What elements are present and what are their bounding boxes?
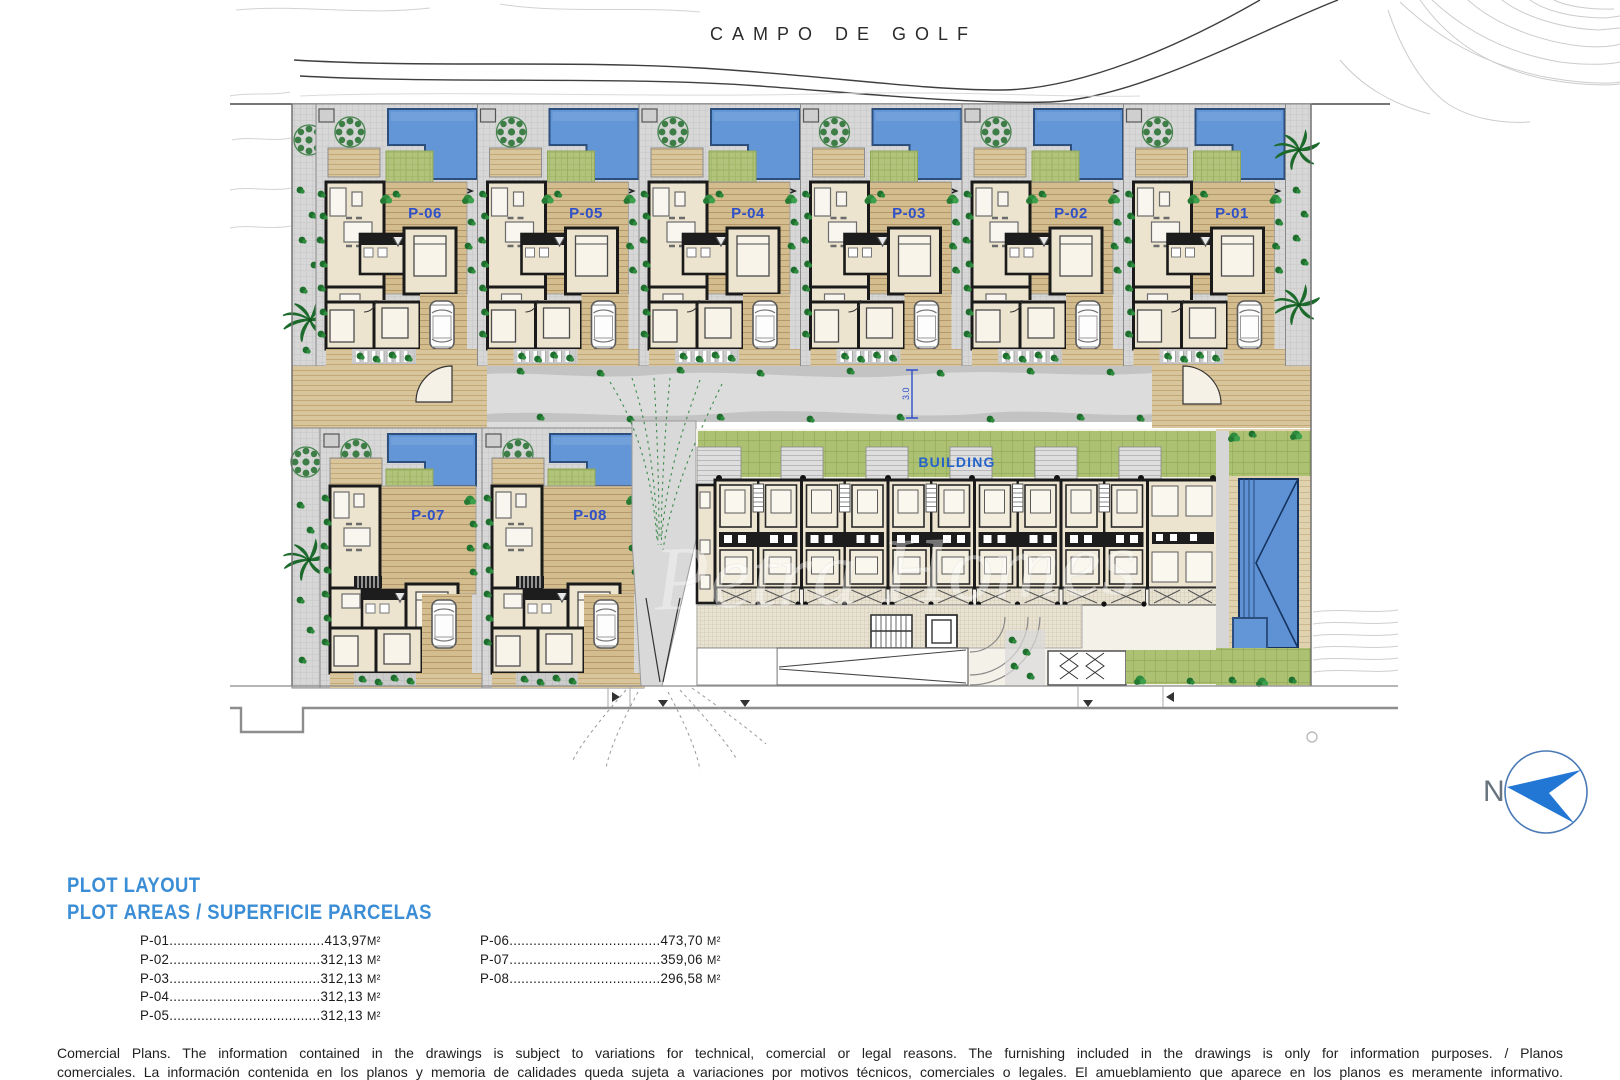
svg-text:CAMPO DE GOLF: CAMPO DE GOLF: [710, 24, 977, 44]
svg-text:P-03: P-03: [892, 205, 926, 222]
svg-text:N: N: [1483, 775, 1505, 808]
svg-text:P-08: P-08: [573, 507, 607, 524]
svg-text:P-02: P-02: [1054, 205, 1088, 222]
svg-text:Petra Homes: Petra Homes: [651, 511, 1138, 630]
svg-text:P-04: P-04: [731, 205, 765, 222]
svg-text:P-05: P-05: [569, 205, 603, 222]
svg-text:P-06: P-06: [408, 205, 442, 222]
svg-text:BUILDING: BUILDING: [918, 454, 995, 470]
svg-text:P-01: P-01: [1215, 205, 1249, 222]
svg-text:3.0: 3.0: [901, 387, 911, 400]
svg-text:P-07: P-07: [411, 507, 445, 524]
